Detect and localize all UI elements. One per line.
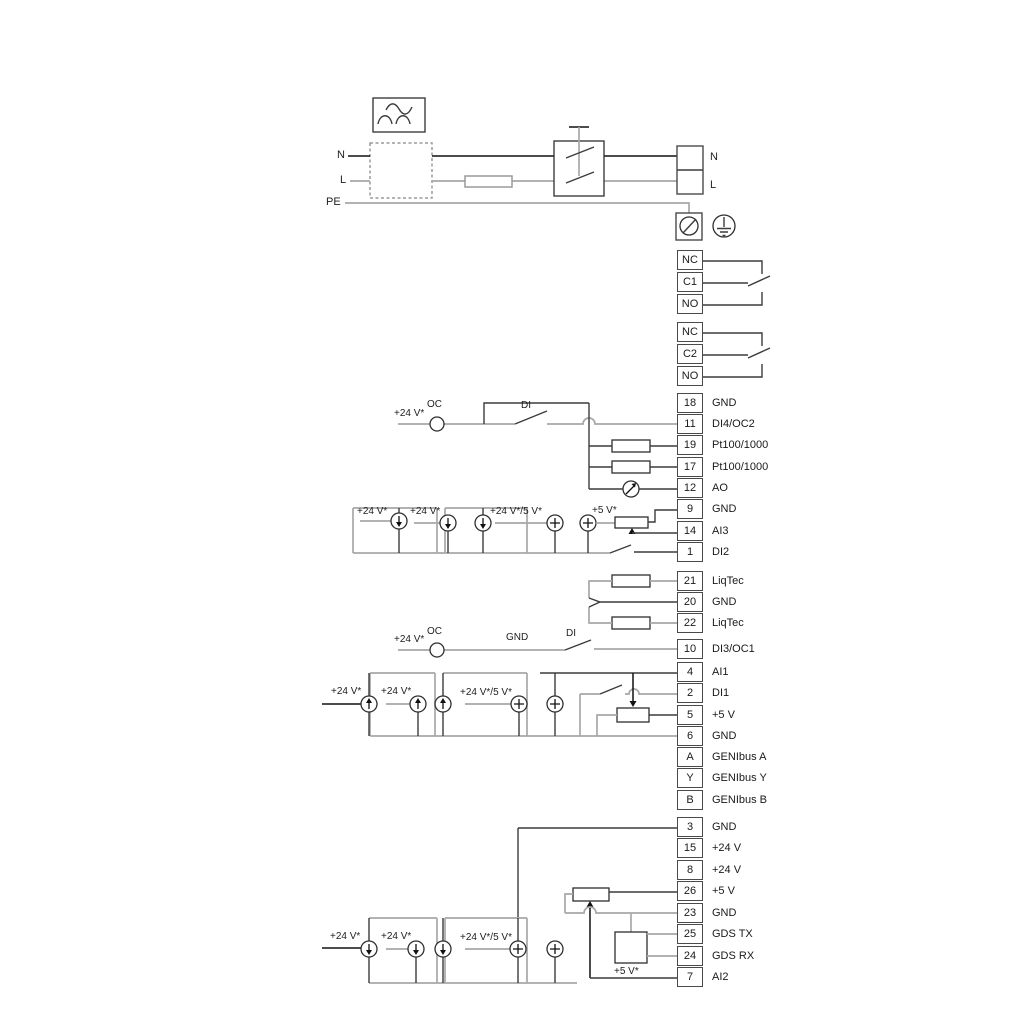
terminal-row: 23GND [677,903,736,923]
wiring-diagram: N L PE N L NC C1 NO NC C2 NO 18GND 11DI4… [0,0,1024,1024]
terminal-row: 2DI1 [677,683,729,703]
terminal-row: 22LiqTec [677,613,744,633]
di3-row [398,640,677,657]
pe-label: PE [326,196,341,208]
di3-switch-blade [565,640,591,650]
open-collector-icon [430,643,444,657]
liqtec-resistor-icon [612,575,650,587]
terminal-row: 14AI3 [677,521,729,541]
relay1-nc: NC [677,250,703,270]
pt100-resistor-icon [612,440,650,452]
terminal-row: 18GND [677,393,736,413]
terminal-row: YGENIbus Y [677,768,767,788]
liqtec-section [589,575,677,629]
terminal-row: 19Pt100/1000 [677,435,768,455]
potentiometer-icon [615,517,648,528]
pt100-resistor-icon [612,461,650,473]
relay2-c2: C2 [677,344,703,364]
terminal-row: AGENIbus A [677,747,766,767]
relay2-no: NO [677,366,703,386]
di2-switch-blade [610,545,631,553]
terminal-row: 15+24 V [677,838,741,858]
l-label: L [340,174,346,186]
supply-label: +24 V*/5 V* [460,932,512,943]
terminal-row: 3GND [677,817,736,837]
terminal-row: 20GND [677,592,736,612]
terminal-row: 9GND [677,499,736,519]
n-right-label: N [710,151,718,163]
supply-label: +24 V* [381,931,411,942]
supply-label: +5 V* [614,966,639,977]
di1-switch-blade [600,685,622,694]
terminal-row: 10DI3/OC1 [677,639,755,659]
oc-label: OC [427,399,442,410]
terminal-row: 8+24 V [677,860,741,880]
terminal-row: 24GDS RX [677,946,754,966]
potentiometer-icon [617,708,649,722]
relay1-no: NO [677,294,703,314]
terminal-row: 11DI4/OC2 [677,414,755,434]
terminal-row: 17Pt100/1000 [677,457,768,477]
terminal-row: 26+5 V [677,881,735,901]
oc-label: OC [427,626,442,637]
supply-label: +24 V* [381,686,411,697]
potentiometer-icon [573,888,609,901]
filter-box [370,143,432,198]
n-label: N [337,149,345,161]
di-label: DI [566,628,576,639]
terminal-row: BGENIbus B [677,790,767,810]
ai2-section [322,828,677,983]
supply-label: +24 V* [331,686,361,697]
terminal-row: 25GDS TX [677,924,753,944]
supply-label: +24 V*/5 V* [460,687,512,698]
terminal-row: 5+5 V [677,705,735,725]
supply-label: +24 V* [330,931,360,942]
relay1-contact [703,261,770,305]
terminal-row: 7AI2 [677,967,729,987]
power-section [345,98,735,240]
relay1-c1: C1 [677,272,703,292]
gnd-label: GND [506,632,528,643]
terminal-row: 1DI2 [677,542,729,562]
pe-wire [345,203,689,213]
open-collector-icon [430,417,444,431]
relay2-contact [703,333,770,377]
pt100-ao [589,440,677,497]
supply-label: +24 V* [394,634,424,645]
supply-label: +24 V* [394,408,424,419]
supply-label: +5 V* [592,505,617,516]
rectifier-icon [373,98,425,132]
l-right-label: L [710,179,716,191]
di4-switch-blade [515,411,547,424]
supply-label: +24 V*/5 V* [490,506,542,517]
liqtec-resistor-icon [612,617,650,629]
supply-label: +24 V* [357,506,387,517]
relay2-nc: NC [677,322,703,342]
terminal-row: 6GND [677,726,736,746]
terminal-row: 12AO [677,478,728,498]
supply-label: +24 V* [410,506,440,517]
ai1-section [322,673,677,736]
gds-sensor-box [615,932,647,963]
terminal-row: 21LiqTec [677,571,744,591]
fuse-icon [465,176,512,187]
terminal-row: 4AI1 [677,662,729,682]
di-label: DI [521,400,531,411]
